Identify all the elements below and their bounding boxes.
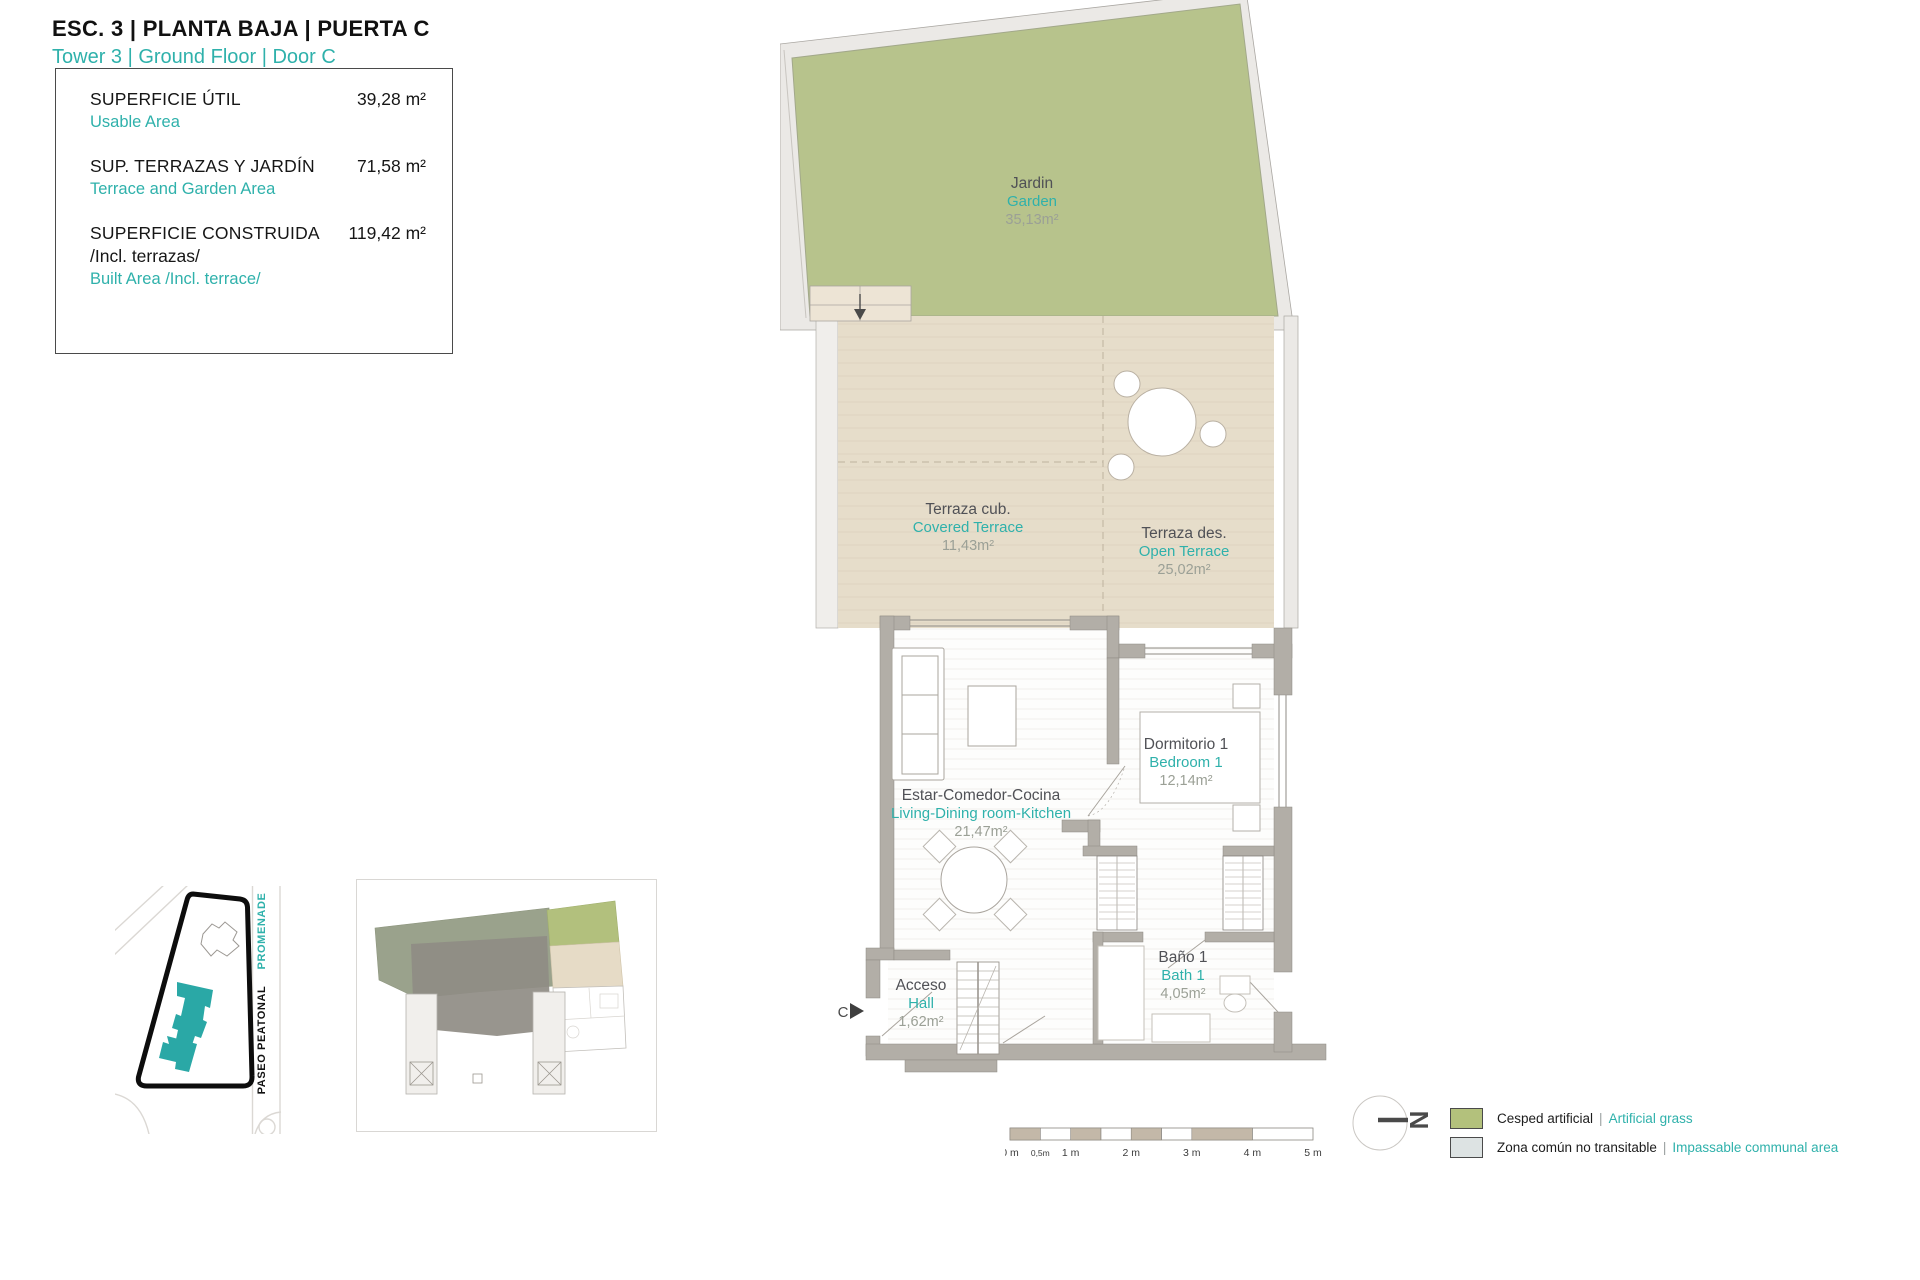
legend-row-communal: Zona común no transitable | Impassable c… (1450, 1133, 1838, 1162)
entrance-marker: C (838, 1003, 864, 1021)
entrance-arrow-icon (850, 1003, 864, 1019)
usable-label-en: Usable Area (90, 113, 426, 132)
label-living: Estar-Comedor-Cocina Living-Dining room-… (891, 786, 1071, 842)
communal-strip-left (816, 316, 838, 628)
site-location-map: PROMENADE PASEO PEATONAL (115, 886, 289, 1134)
scale-bar: 0 m 0,5m 1 m 2 m 3 m 4 m 5 m (1005, 1120, 1345, 1170)
street-label-promenade: PROMENADE (256, 893, 268, 970)
terrace-value: 71,58 m² (351, 156, 426, 177)
terrace-label-es: SUP. TERRAZAS Y JARDÍN (90, 156, 315, 177)
terrace-label-en: Terrace and Garden Area (90, 180, 426, 199)
sofa (892, 648, 944, 780)
scale-tick-1: 1 m (1062, 1147, 1080, 1159)
built-label-es2: /Incl. terrazas/ (90, 246, 426, 267)
stairs (957, 962, 999, 1054)
compass-circle (1353, 1096, 1407, 1150)
surface-info-box: SUPERFICIE ÚTIL 39,28 m² Usable Area SUP… (55, 68, 453, 354)
keyplan-terrace-unit (550, 942, 623, 988)
label-covered-terrace: Terraza cub. Covered Terrace 11,43m² (913, 500, 1024, 556)
grass-swatch-icon (1450, 1108, 1483, 1129)
header: ESC. 3 | PLANTA BAJA | PUERTA C Tower 3 … (52, 16, 430, 69)
built-label-es: SUPERFICIE CONSTRUIDA (90, 223, 320, 244)
coffee-table (968, 686, 1016, 746)
garden-area (792, 4, 1278, 316)
communal-swatch-icon (1450, 1137, 1483, 1158)
info-row-built: SUPERFICIE CONSTRUIDA 119,42 m² /Incl. t… (90, 223, 426, 289)
toilet (1220, 976, 1250, 1012)
terrace-table (1128, 388, 1196, 456)
entrance-letter: C (838, 1004, 849, 1021)
scale-tick-0: 0 m (1005, 1147, 1019, 1159)
scale-bar-labels: 0 m 0,5m 1 m 2 m 3 m 4 m 5 m (1005, 1147, 1322, 1159)
label-hall: Acceso Hall 1,62m² (896, 976, 947, 1032)
sink (1152, 1014, 1210, 1042)
built-value: 119,42 m² (343, 223, 427, 244)
legend: Cesped artificial | Artificial grass Zon… (1450, 1104, 1838, 1162)
page-subtitle: Tower 3 | Ground Floor | Door C (52, 46, 430, 69)
dining-table (941, 847, 1007, 913)
wardrobe (1097, 856, 1137, 930)
street-label-paseo: PASEO PEATONAL (256, 986, 268, 1095)
page-title: ESC. 3 | PLANTA BAJA | PUERTA C (52, 16, 430, 42)
main-floorplan: C (780, 0, 1340, 1100)
scale-tick-3: 3 m (1183, 1147, 1201, 1159)
shower (1098, 946, 1144, 1040)
north-letter: N (1404, 1111, 1434, 1130)
label-bath: Baño 1 Bath 1 4,05m² (1158, 948, 1207, 1004)
garden-steps (810, 286, 911, 321)
scale-tick-2: 2 m (1122, 1147, 1140, 1159)
scale-tick-4: 4 m (1244, 1147, 1262, 1159)
key-plan (356, 879, 657, 1132)
label-garden: Jardin Garden 35,13m² (1005, 174, 1058, 230)
info-row-terrace-garden: SUP. TERRAZAS Y JARDÍN 71,58 m² Terrace … (90, 156, 426, 199)
terrace-stool (1200, 421, 1226, 447)
terrace-area (816, 316, 1274, 628)
scale-tick-5: 5 m (1304, 1147, 1322, 1159)
highlighted-building (159, 982, 213, 1072)
nightstand (1233, 805, 1260, 831)
neighbor-building-outline (201, 922, 239, 956)
floorplan-page: ESC. 3 | PLANTA BAJA | PUERTA C Tower 3 … (0, 0, 1920, 1280)
info-row-usable: SUPERFICIE ÚTIL 39,28 m² Usable Area (90, 89, 426, 132)
usable-value: 39,28 m² (351, 89, 426, 110)
nightstand (1233, 684, 1260, 708)
terrace-stool (1108, 454, 1134, 480)
scale-bar-segments (1010, 1128, 1313, 1140)
terrace-stool (1114, 371, 1140, 397)
keyplan-garden-unit (547, 901, 619, 946)
usable-label-es: SUPERFICIE ÚTIL (90, 89, 241, 110)
north-compass: N (1340, 1085, 1440, 1175)
communal-strip-right (1284, 316, 1298, 628)
built-label-en: Built Area /Incl. terrace/ (90, 270, 426, 289)
legend-row-grass: Cesped artificial | Artificial grass (1450, 1104, 1838, 1133)
label-bedroom: Dormitorio 1 Bedroom 1 12,14m² (1144, 735, 1228, 791)
scale-tick-05: 0,5m (1031, 1148, 1050, 1158)
wardrobe (1223, 856, 1263, 930)
label-open-terrace: Terraza des. Open Terrace 25,02m² (1139, 524, 1230, 580)
